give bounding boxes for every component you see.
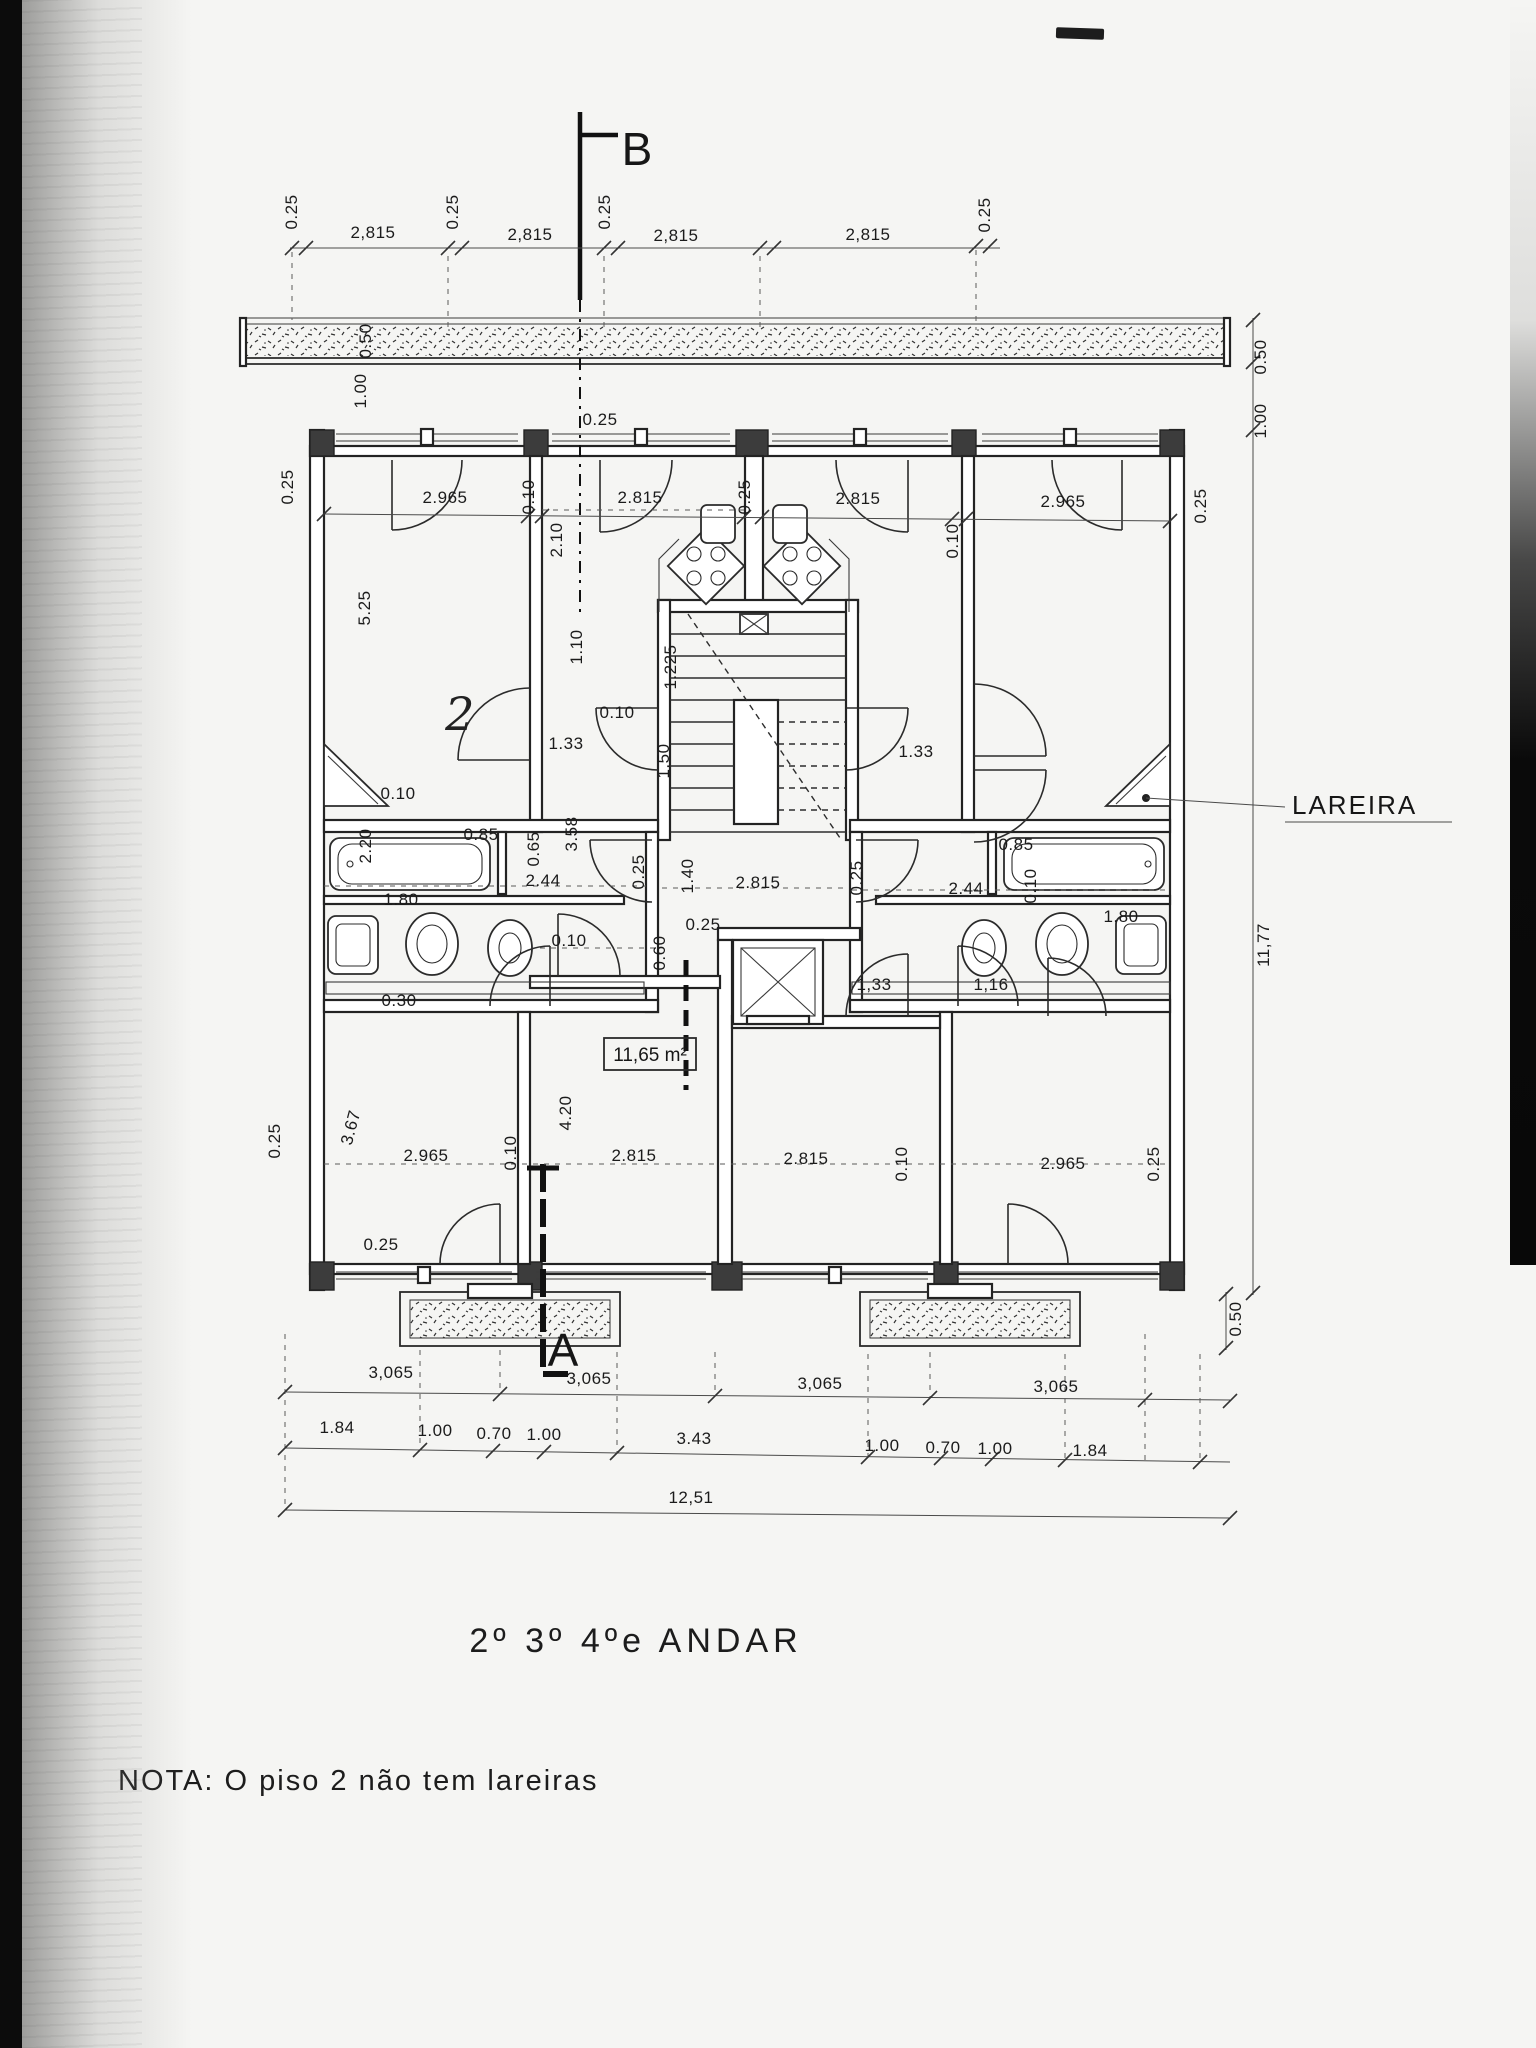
toilet-left xyxy=(406,913,458,975)
dimension-label: 0.10 xyxy=(551,931,586,950)
fireplace-label: LAREIRA xyxy=(1292,790,1417,820)
dimension-label: 1,16 xyxy=(973,975,1008,994)
dimension-label: 0.25 xyxy=(629,854,648,889)
bidet-right xyxy=(962,920,1006,976)
dimension-label: 0.25 xyxy=(975,197,994,232)
scan-mark xyxy=(1056,27,1104,40)
dimension-label: 0.25 xyxy=(582,410,617,429)
dimension-label: 0.85 xyxy=(998,835,1033,854)
dimension-label: 4.20 xyxy=(556,1095,575,1130)
dimension-label: 1.80 xyxy=(383,890,418,909)
dimension-label: 3,065 xyxy=(368,1363,413,1382)
dimension-label: 1.00 xyxy=(977,1439,1012,1458)
dimension-label: 0.65 xyxy=(524,831,543,866)
fireplaces xyxy=(324,744,1452,822)
dimension-label: 0.70 xyxy=(476,1424,511,1443)
dimension-label: 5.25 xyxy=(355,590,374,625)
dimension-label: 2,815 xyxy=(845,225,890,244)
dimension-label: 2.20 xyxy=(356,828,375,863)
elevator-shaft xyxy=(733,940,823,1024)
dimension-label: 0.25 xyxy=(847,860,866,895)
bottom-balconies xyxy=(400,1284,1080,1346)
fireplace-right xyxy=(1106,744,1170,806)
dimension-label: 0.25 xyxy=(265,1123,284,1158)
dimension-label: 2.815 xyxy=(617,488,662,507)
scan-streaks xyxy=(22,0,142,2048)
dimension-label: 3,065 xyxy=(797,1374,842,1393)
dimension-label: 1.10 xyxy=(567,629,586,664)
dimension-label: 0.70 xyxy=(925,1438,960,1457)
dimension-label: 2.815 xyxy=(735,873,780,892)
top-balcony xyxy=(240,318,1230,366)
stair-core xyxy=(670,614,846,838)
dimension-label: 2.815 xyxy=(835,489,880,508)
dimension-label: 0.25 xyxy=(1191,488,1210,523)
bidet-left xyxy=(488,920,532,976)
dimension-label: 1.00 xyxy=(351,373,370,408)
dimension-label: 1.50 xyxy=(654,743,673,778)
dimension-label: 0.50 xyxy=(1251,339,1270,374)
dimension-label: 1.84 xyxy=(1072,1441,1107,1460)
toilet-right xyxy=(1036,913,1088,975)
dimension-label: 0.10 xyxy=(892,1146,911,1181)
dimension-label: 2.44 xyxy=(948,879,983,898)
dimension-label: 0.85 xyxy=(463,825,498,844)
dimension-label: 0.30 xyxy=(381,991,416,1010)
dimension-label: 1.33 xyxy=(548,734,583,753)
kitchen-sink-left xyxy=(701,505,735,543)
dimension-label: 3.58 xyxy=(562,816,581,851)
dimension-label: 0.10 xyxy=(501,1135,520,1170)
dimension-label: 1.84 xyxy=(319,1418,354,1437)
dimension-label: 0.50 xyxy=(1226,1301,1245,1336)
dimension-label: 1.00 xyxy=(417,1421,452,1440)
dimension-label: 2.815 xyxy=(783,1149,828,1168)
dimension-label: 2,815 xyxy=(507,225,552,244)
scanned-floor-plan-page: 11,65 m² B A LAREIRA 0.252,8150.252,8150… xyxy=(0,0,1536,2048)
fireplace-left xyxy=(324,744,388,806)
dimension-label: 0.25 xyxy=(595,194,614,229)
dimension-label: 2.965 xyxy=(1040,1154,1085,1173)
dimension-label: 1.225 xyxy=(661,644,680,689)
dimension-label: 2.10 xyxy=(547,522,566,557)
scan-edge-left xyxy=(0,0,22,2048)
scan-edge-right xyxy=(1510,0,1536,1265)
dimension-label: 1.00 xyxy=(526,1425,561,1444)
dimension-label: 0.25 xyxy=(735,479,754,514)
floor-plan-drawing: 11,65 m² B A LAREIRA 0.252,8150.252,8150… xyxy=(0,0,1536,2048)
dimension-label: 2.965 xyxy=(422,488,467,507)
dimension-label: 0.50 xyxy=(356,323,375,358)
section-label-b: B xyxy=(622,123,653,175)
kitchen-sink-right xyxy=(773,505,807,543)
dimension-label: 1.00 xyxy=(1251,403,1270,438)
dimension-label: 3,065 xyxy=(566,1369,611,1388)
dimension-label: 2.965 xyxy=(403,1146,448,1165)
dimension-label: 1.00 xyxy=(864,1436,899,1455)
dimension-label: 0.25 xyxy=(363,1235,398,1254)
dimension-label: 0.25 xyxy=(282,194,301,229)
dimension-label: 0.25 xyxy=(1144,1146,1163,1181)
room-area-label: 11,65 m² xyxy=(613,1045,687,1066)
room-area-box: 11,65 m² xyxy=(604,1038,696,1070)
dimension-label: 3.67 xyxy=(337,1108,364,1147)
dimension-label: 3,065 xyxy=(1033,1377,1078,1396)
bathtub-left xyxy=(330,838,490,890)
dimension-label: 2 xyxy=(444,687,475,741)
dimension-label: 1.80 xyxy=(1103,907,1138,926)
dimension-label: 0.60 xyxy=(650,935,669,970)
dimension-label: 0.10 xyxy=(943,523,962,558)
dimension-label: 2.965 xyxy=(1040,492,1085,511)
dimension-label: 0.25 xyxy=(685,915,720,934)
dimension-label: 0.25 xyxy=(278,469,297,504)
dimension-label: 0.10 xyxy=(380,784,415,803)
dimension-label: 2,815 xyxy=(350,223,395,242)
dimension-label: 0.10 xyxy=(519,479,538,514)
dimension-label: 0.25 xyxy=(443,194,462,229)
dimension-label: 1.40 xyxy=(678,858,697,893)
dimension-label: 0.10 xyxy=(599,703,634,722)
dimension-label: 3.43 xyxy=(676,1429,711,1448)
dimension-label: 2,815 xyxy=(653,226,698,245)
dimension-label: 0.10 xyxy=(1021,868,1040,903)
dimension-label: 11,77 xyxy=(1254,923,1273,967)
plan-title: 2º 3º 4ºe ANDAR xyxy=(469,1622,802,1660)
dimension-label: 1.33 xyxy=(898,742,933,761)
dimension-label: 2.44 xyxy=(525,871,560,890)
dimension-label: 1,33 xyxy=(856,975,891,994)
dimension-label: 12,51 xyxy=(668,1488,713,1507)
dimension-label: 2.815 xyxy=(611,1146,656,1165)
